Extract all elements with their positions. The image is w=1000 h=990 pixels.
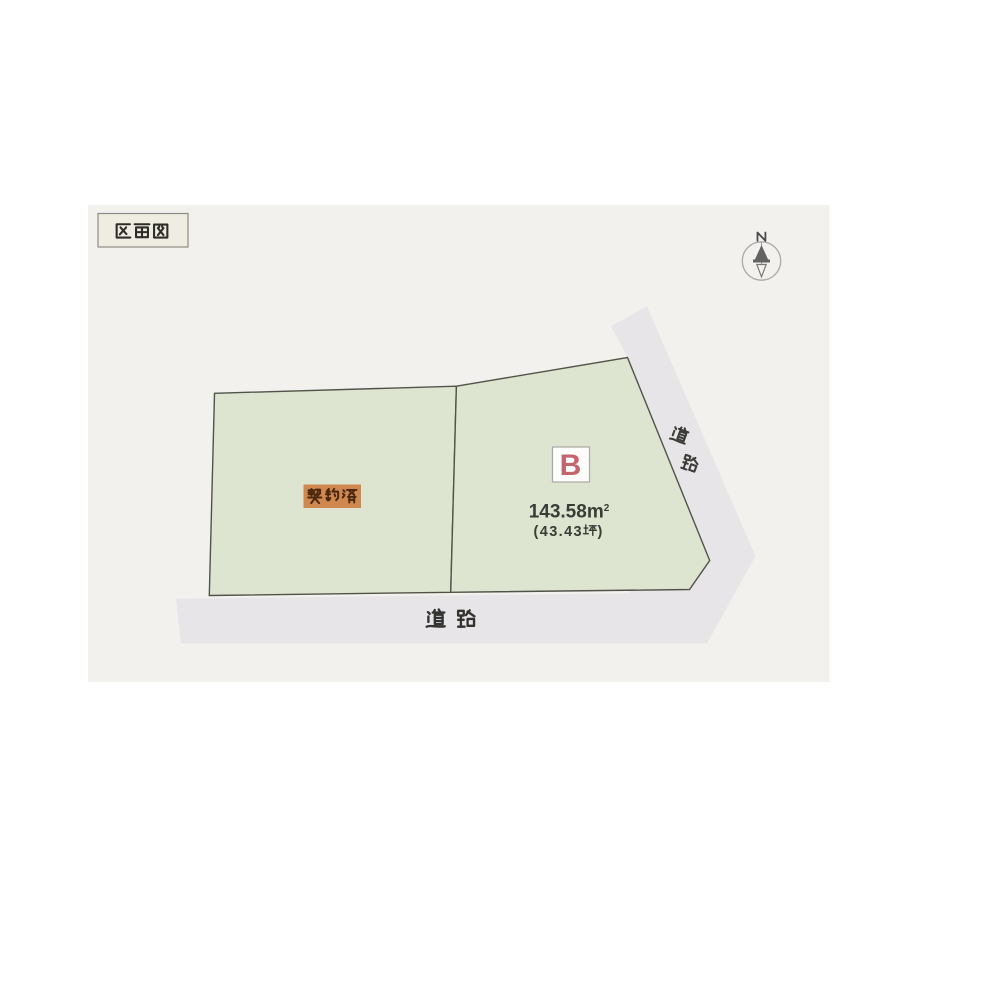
svg-text:B: B [560,449,582,482]
svg-text:): ) [598,524,603,540]
svg-text:143.58m2: 143.58m2 [529,501,610,522]
svg-text:(43.43: (43.43 [534,524,584,540]
